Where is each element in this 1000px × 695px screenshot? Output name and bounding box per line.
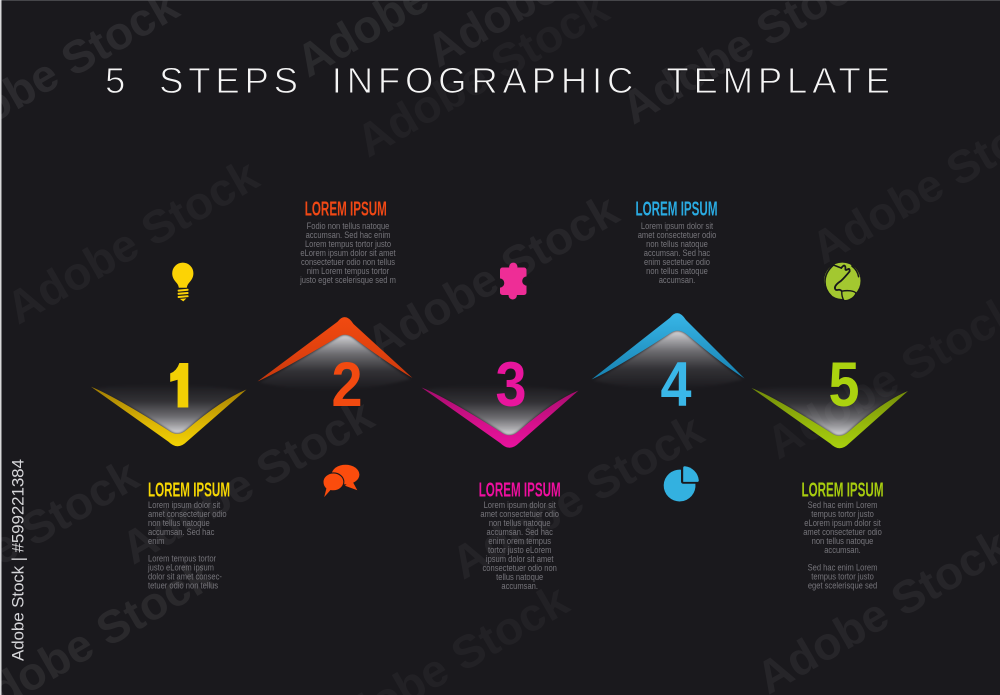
svg-text:5: 5 [829,350,860,420]
svg-text:3: 3 [496,350,527,420]
svg-text:LOREM IPSUM: LOREM IPSUM [636,198,718,220]
svg-text:LOREM IPSUM: LOREM IPSUM [305,198,387,220]
svg-text:Adobe Stock | #599221384: Adobe Stock | #599221384 [9,459,28,661]
svg-text:Lorem ipsum dolor sitamet cons: Lorem ipsum dolor sitamet consectetuer o… [638,221,717,285]
svg-text:Fodio non tellus natoqueaccums: Fodio non tellus natoqueaccumsan. Sed ha… [299,221,396,285]
svg-text:LOREM IPSUM: LOREM IPSUM [148,480,230,502]
svg-text:LOREM IPSUM: LOREM IPSUM [802,480,884,502]
svg-text:Sed hac enim Loremtempus torto: Sed hac enim Loremtempus tortor justoege… [808,563,878,591]
svg-text:2: 2 [332,350,363,420]
svg-text:4: 4 [661,350,692,420]
svg-text:Lorem tempus tortorjusto eLore: Lorem tempus tortorjusto eLorem ipsumdol… [147,554,222,591]
svg-text:LOREM IPSUM: LOREM IPSUM [479,480,561,502]
svg-text:5 STEPS INFOGRAPHIC TEMPLATE: 5 STEPS INFOGRAPHIC TEMPLATE [105,60,899,101]
